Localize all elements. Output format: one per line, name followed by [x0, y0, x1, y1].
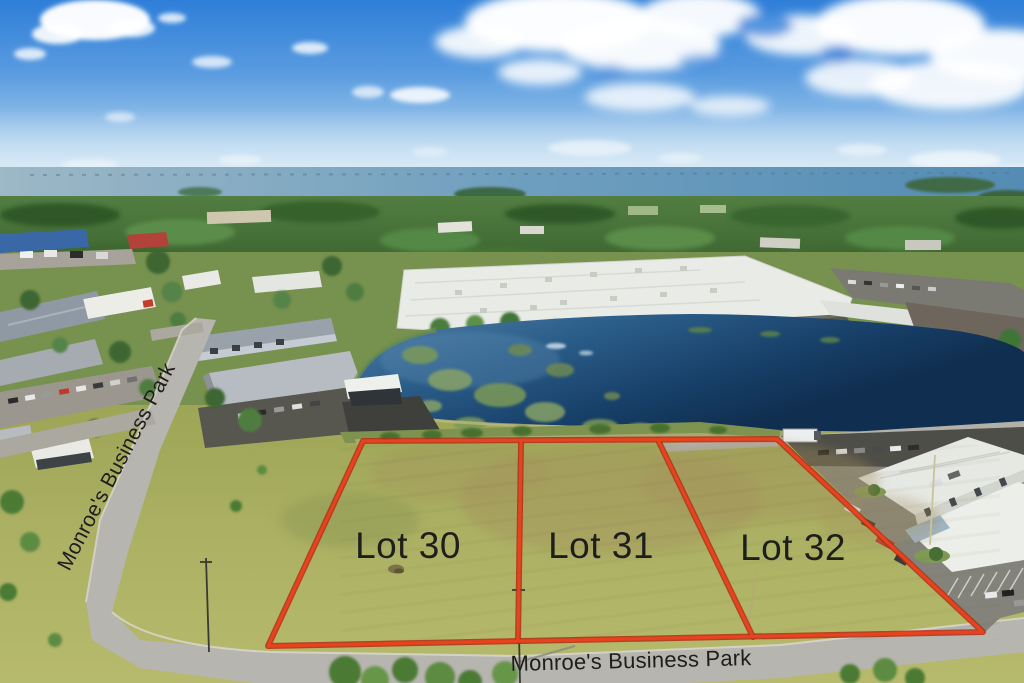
white-trailer — [783, 429, 817, 442]
lot-32-label: Lot 32 — [740, 527, 846, 569]
aerial-photo-canvas — [0, 0, 1024, 683]
pond — [350, 314, 1024, 433]
horizon-haze — [0, 108, 1024, 172]
lot-31-label: Lot 31 — [548, 525, 654, 567]
lot-30-label: Lot 30 — [355, 525, 461, 567]
aerial-photo: Lot 30 Lot 31 Lot 32 Monroe's Business P… — [0, 0, 1024, 683]
